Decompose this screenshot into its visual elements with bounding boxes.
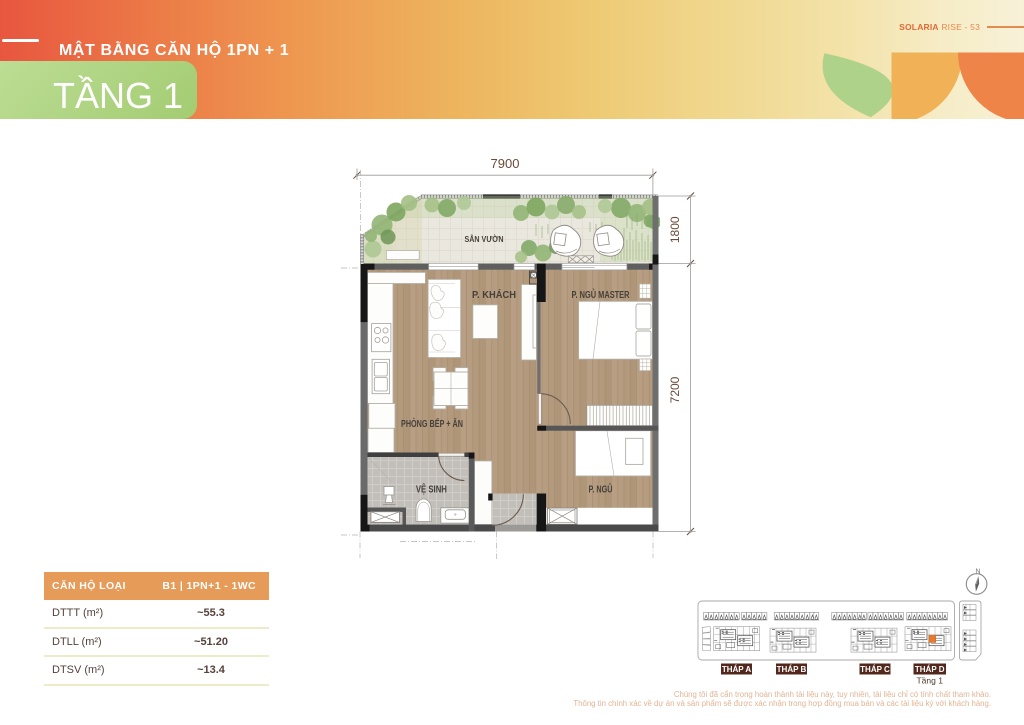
svg-text:VỆ SINH: VỆ SINH	[416, 483, 447, 496]
svg-text:THÁP B: THÁP B	[777, 665, 807, 674]
svg-text:7200: 7200	[668, 376, 682, 403]
svg-text:P. NGỦ: P. NGỦ	[589, 483, 613, 496]
svg-text:N: N	[975, 569, 980, 576]
svg-text:SÂN VƯỜN: SÂN VƯỜN	[465, 233, 504, 244]
svg-text:P. NGỦ MASTER: P. NGỦ MASTER	[572, 288, 631, 301]
svg-text:1800: 1800	[668, 216, 682, 243]
svg-text:7900: 7900	[491, 156, 520, 171]
svg-text:PHÒNG BẾP + ĂN: PHÒNG BẾP + ĂN	[401, 417, 463, 430]
svg-text:P. KHÁCH: P. KHÁCH	[472, 288, 516, 301]
svg-text:Tầng 1: Tầng 1	[916, 676, 943, 686]
svg-text:THÁP D: THÁP D	[915, 665, 945, 674]
svg-text:THÁP A: THÁP A	[722, 665, 752, 674]
svg-text:THÁP C: THÁP C	[860, 665, 890, 674]
